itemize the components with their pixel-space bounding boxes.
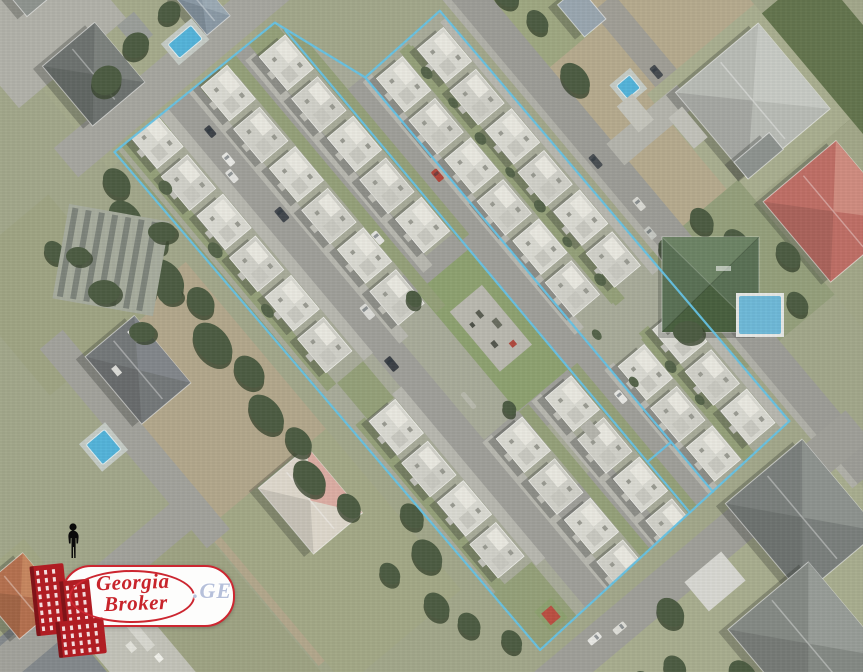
logo-domain-suffix: .GE	[193, 578, 232, 604]
person-silhouette-icon	[60, 522, 86, 562]
watermark-logo: Georgia Broker .GE	[12, 522, 250, 662]
screenshot-root: Georgia Broker .GE	[0, 0, 863, 672]
swimming-pool	[739, 296, 781, 334]
logo-brand-line2: Broker	[104, 590, 169, 617]
